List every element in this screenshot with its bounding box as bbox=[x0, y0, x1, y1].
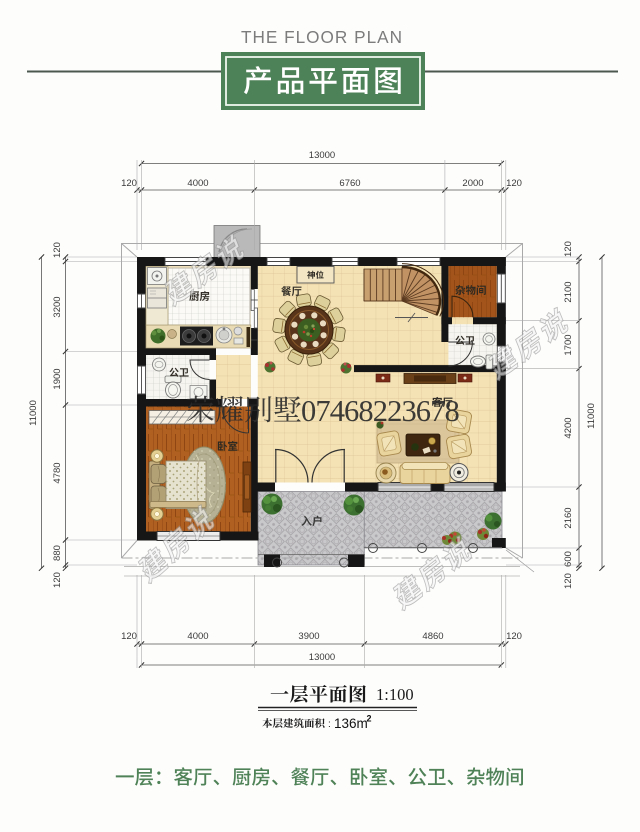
svg-text:2: 2 bbox=[367, 714, 372, 724]
svg-text:120: 120 bbox=[563, 241, 574, 257]
svg-text:136m: 136m bbox=[334, 716, 368, 731]
svg-text:13000: 13000 bbox=[309, 150, 335, 161]
svg-text:120: 120 bbox=[121, 178, 137, 189]
svg-text:120: 120 bbox=[563, 573, 574, 589]
svg-text:13000: 13000 bbox=[309, 652, 335, 663]
svg-text:1700: 1700 bbox=[563, 334, 574, 355]
svg-text:2100: 2100 bbox=[563, 281, 574, 302]
svg-text:1:100: 1:100 bbox=[376, 685, 414, 704]
svg-text:120: 120 bbox=[506, 631, 522, 642]
svg-text:600: 600 bbox=[563, 551, 574, 567]
svg-text:1900: 1900 bbox=[52, 368, 63, 389]
svg-text::: : bbox=[328, 719, 331, 730]
svg-text:4780: 4780 bbox=[52, 462, 63, 483]
svg-text:6760: 6760 bbox=[339, 178, 360, 189]
svg-text:2160: 2160 bbox=[563, 507, 574, 528]
svg-text:880: 880 bbox=[52, 545, 63, 561]
svg-text:120: 120 bbox=[121, 631, 137, 642]
svg-text:2000: 2000 bbox=[462, 178, 483, 189]
svg-text:11000: 11000 bbox=[28, 400, 39, 426]
svg-text:07468223678: 07468223678 bbox=[301, 394, 460, 428]
svg-text:4000: 4000 bbox=[187, 178, 208, 189]
svg-text:3200: 3200 bbox=[52, 296, 63, 317]
svg-text:120: 120 bbox=[506, 178, 522, 189]
svg-text:3900: 3900 bbox=[298, 631, 319, 642]
svg-text:4860: 4860 bbox=[422, 631, 443, 642]
svg-text:4000: 4000 bbox=[187, 631, 208, 642]
svg-text:120: 120 bbox=[52, 572, 63, 588]
svg-text:120: 120 bbox=[52, 242, 63, 258]
svg-text:11000: 11000 bbox=[586, 403, 597, 429]
svg-text:THE FLOOR PLAN: THE FLOOR PLAN bbox=[241, 27, 403, 47]
svg-text:4200: 4200 bbox=[563, 417, 574, 438]
